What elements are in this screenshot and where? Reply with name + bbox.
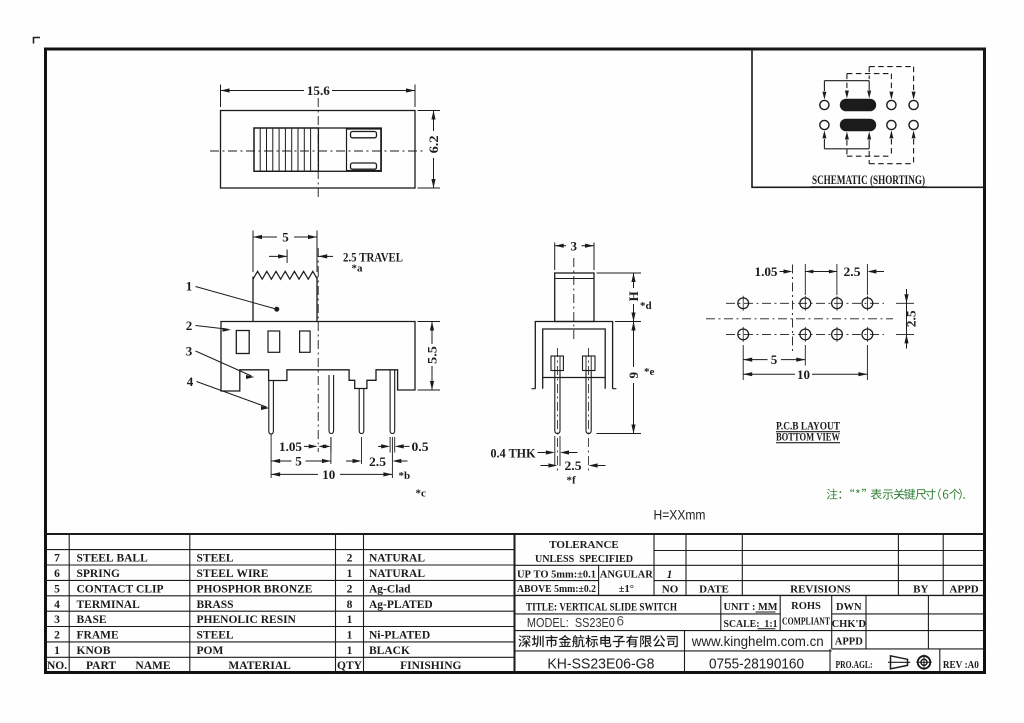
svg-text:10: 10 — [322, 467, 335, 482]
svg-text:ROHS: ROHS — [791, 601, 821, 612]
svg-text:5: 5 — [771, 352, 778, 367]
svg-text:www.kinghelm.com.cn: www.kinghelm.com.cn — [691, 633, 824, 649]
svg-text:ANGULAR: ANGULAR — [600, 570, 654, 581]
svg-text:5.5: 5.5 — [424, 345, 439, 364]
svg-text:6: 6 — [617, 614, 625, 629]
svg-text:7: 7 — [54, 553, 60, 565]
svg-text:H: H — [626, 291, 641, 301]
svg-text:1: 1 — [54, 645, 60, 657]
svg-text:6: 6 — [54, 568, 60, 580]
svg-text:4: 4 — [54, 599, 60, 611]
svg-text:CONTACT CLIP: CONTACT CLIP — [77, 583, 164, 595]
svg-text:SCALE: 1:1: SCALE: 1:1 — [724, 618, 778, 630]
svg-text:KNOB: KNOB — [77, 645, 111, 657]
svg-text:3: 3 — [571, 238, 578, 253]
svg-text:NATURAL: NATURAL — [369, 568, 425, 580]
svg-text:TITLE: VERTICAL SLIDE SWITCH: TITLE: VERTICAL SLIDE SWITCH — [526, 599, 677, 613]
svg-text:DWN: DWN — [836, 602, 862, 613]
svg-text:1.05: 1.05 — [755, 265, 778, 279]
svg-text:BY: BY — [913, 583, 928, 595]
svg-text:15.6: 15.6 — [307, 83, 331, 98]
svg-text:PRO.AGL:: PRO.AGL: — [836, 659, 873, 671]
svg-text:1: 1 — [667, 569, 673, 581]
svg-text:*c: *c — [416, 488, 427, 500]
svg-text:BOTTOM VIEW: BOTTOM VIEW — [776, 431, 840, 443]
svg-text:*b: *b — [399, 470, 411, 482]
svg-text:5: 5 — [295, 454, 302, 469]
svg-text:DATE: DATE — [699, 583, 729, 595]
svg-text:STEEL: STEEL — [197, 630, 234, 642]
svg-text:*a: *a — [352, 263, 364, 275]
svg-text:Ni-PLATED: Ni-PLATED — [369, 630, 430, 642]
svg-text:3: 3 — [186, 344, 193, 359]
svg-text:REVISIONS: REVISIONS — [790, 583, 851, 595]
svg-text:2.5: 2.5 — [844, 265, 861, 279]
svg-text:3: 3 — [54, 614, 60, 626]
svg-text:4: 4 — [187, 374, 194, 389]
svg-text:10: 10 — [797, 367, 810, 382]
svg-text:TERMINAL: TERMINAL — [77, 599, 141, 611]
svg-text:1: 1 — [186, 279, 193, 294]
svg-text:0.4 THK: 0.4 THK — [491, 446, 536, 460]
svg-text:BASE: BASE — [77, 614, 107, 626]
svg-text:2: 2 — [186, 318, 193, 333]
svg-text:KH-SS23E06-G8: KH-SS23E06-G8 — [547, 656, 654, 672]
svg-text:2: 2 — [347, 553, 353, 565]
svg-text:2.5: 2.5 — [905, 310, 919, 327]
svg-text:1: 1 — [347, 568, 353, 580]
svg-text:ABOVE 5mm:±0.2: ABOVE 5mm:±0.2 — [517, 584, 596, 595]
svg-text:1.05: 1.05 — [279, 440, 302, 454]
svg-text:5: 5 — [282, 230, 289, 245]
svg-text:UNLESS SPECIFIED: UNLESS SPECIFIED — [535, 553, 633, 565]
svg-text:0755-28190160: 0755-28190160 — [709, 656, 804, 672]
svg-text:Ag-Clad: Ag-Clad — [369, 583, 411, 595]
svg-text:PHENOLIC RESIN: PHENOLIC RESIN — [197, 614, 297, 626]
svg-text:BRASS: BRASS — [197, 599, 234, 611]
svg-text:POM: POM — [197, 645, 224, 657]
svg-text:1: 1 — [347, 645, 353, 657]
svg-text:H=XXmm: H=XXmm — [654, 508, 706, 523]
svg-text:MATERIAL: MATERIAL — [228, 660, 291, 672]
svg-text:6.2: 6.2 — [426, 135, 441, 153]
svg-text:2.5: 2.5 — [565, 459, 582, 473]
svg-text:STEEL WIRE: STEEL WIRE — [197, 568, 269, 580]
svg-text:2: 2 — [54, 630, 60, 642]
svg-text:2: 2 — [347, 583, 353, 595]
svg-text:APPD: APPD — [949, 583, 978, 595]
svg-text:NO.: NO. — [47, 660, 67, 672]
svg-text:QTY: QTY — [337, 660, 363, 672]
svg-text:SCHEMATIC (SHORTING): SCHEMATIC (SHORTING) — [812, 173, 925, 187]
svg-text:8: 8 — [347, 599, 353, 611]
svg-text:BLACK: BLACK — [369, 645, 410, 657]
svg-text:MODEL: SS23E0: MODEL: SS23E0 — [527, 615, 615, 630]
svg-text:NO: NO — [662, 583, 679, 595]
svg-text:FRAME: FRAME — [77, 630, 119, 642]
svg-text:STEEL BALL: STEEL BALL — [77, 553, 149, 565]
svg-text:CHK'D: CHK'D — [832, 619, 867, 630]
svg-text:9: 9 — [626, 371, 641, 378]
svg-text:0.5: 0.5 — [412, 440, 429, 454]
svg-text:REV :A0: REV :A0 — [943, 659, 979, 671]
svg-text:2.5: 2.5 — [369, 455, 386, 469]
svg-text:COMPLIANT: COMPLIANT — [782, 617, 830, 628]
svg-text:TOLERANCE: TOLERANCE — [549, 539, 618, 551]
svg-text:SPRING: SPRING — [77, 568, 121, 580]
svg-text:1: 1 — [347, 614, 353, 626]
svg-text:*f: *f — [567, 475, 577, 487]
svg-text:*d: *d — [640, 300, 652, 312]
svg-text:NAME: NAME — [135, 660, 170, 672]
svg-text:UP TO 5mm:±0.1: UP TO 5mm:±0.1 — [517, 570, 596, 581]
svg-text:APPD: APPD — [835, 637, 863, 648]
svg-text:NATURAL: NATURAL — [369, 553, 425, 565]
svg-text:UNIT : MM: UNIT : MM — [724, 601, 779, 613]
svg-text:PART: PART — [86, 660, 116, 672]
svg-text:Ag-PLATED: Ag-PLATED — [369, 599, 433, 611]
svg-text:PHOSPHOR BRONZE: PHOSPHOR BRONZE — [197, 583, 313, 595]
svg-text:±1°: ±1° — [619, 584, 634, 595]
svg-text:5: 5 — [54, 583, 60, 595]
svg-text:1: 1 — [347, 630, 353, 642]
svg-text:STEEL: STEEL — [197, 553, 234, 565]
svg-text:*e: *e — [644, 366, 655, 378]
svg-text:FINISHING: FINISHING — [400, 660, 461, 672]
